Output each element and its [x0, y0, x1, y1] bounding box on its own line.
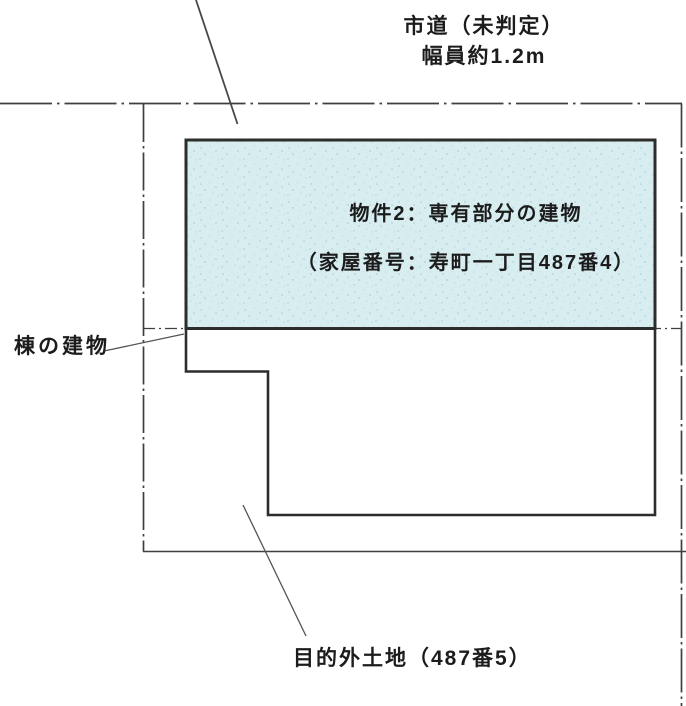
other-land-leader-line [243, 505, 306, 636]
building-annotation: 棟の建物 [14, 330, 110, 360]
unit-annotation: 物件2：専有部分の建物 （家屋番号：寿町一丁目487番4） [288, 190, 644, 288]
building-footprint-outline [186, 329, 655, 516]
road-annotation-line2: 幅員約1.2m [388, 42, 580, 72]
road-annotation-line1: 市道（未判定） [388, 12, 580, 42]
road-leader-line [196, 0, 238, 124]
unit-annotation-line1: 物件2：専有部分の建物 [288, 190, 644, 239]
unit-annotation-line2: （家屋番号：寿町一丁目487番4） [288, 239, 644, 288]
site-plan-diagram: 市道（未判定） 幅員約1.2m 物件2：専有部分の建物 （家屋番号：寿町一丁目4… [0, 0, 686, 706]
other-land-annotation: 目的外土地（487番5） [293, 642, 532, 672]
road-annotation: 市道（未判定） 幅員約1.2m [388, 12, 580, 72]
